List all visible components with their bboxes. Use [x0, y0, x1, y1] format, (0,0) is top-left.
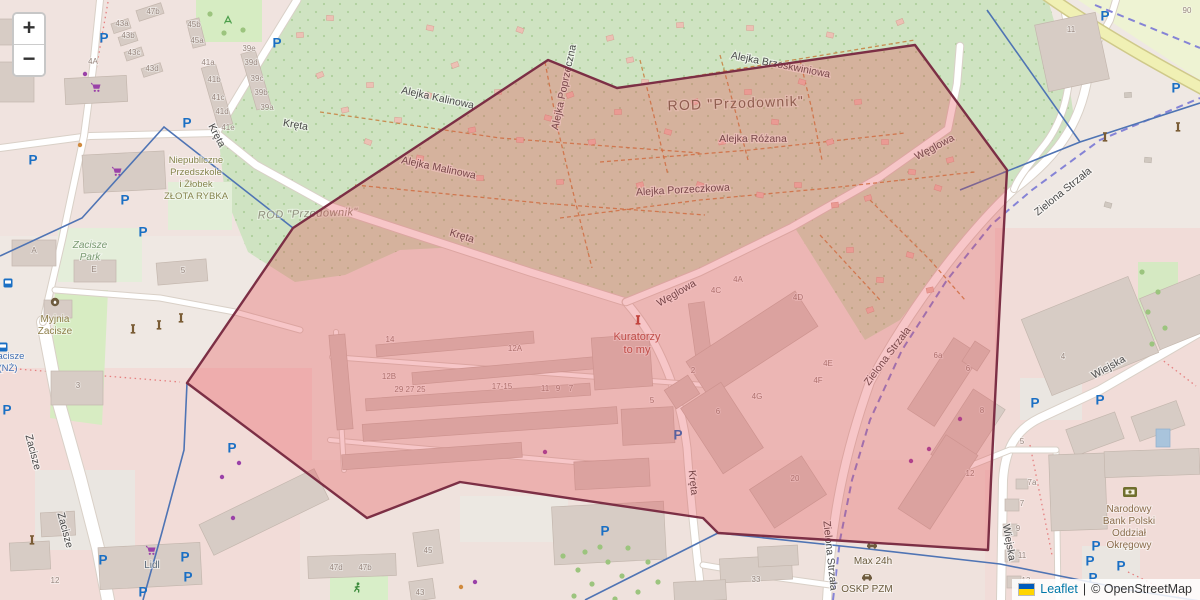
allotment-hut	[394, 117, 401, 123]
tree	[655, 579, 660, 584]
tree	[240, 27, 245, 32]
allotment-hut	[676, 22, 683, 28]
dot-purple-icon	[237, 461, 241, 465]
parking-icon	[227, 441, 236, 456]
parking-icon	[600, 524, 609, 539]
poi-label-line: Park	[80, 252, 102, 263]
poi-label-line: Oddział	[1112, 528, 1147, 539]
tree	[207, 11, 212, 16]
parking-icon	[1116, 559, 1125, 574]
house-number: 47b	[358, 563, 372, 572]
building	[1016, 479, 1028, 489]
parking-icon	[180, 550, 189, 565]
house-number: 43	[416, 588, 425, 597]
poi-label-lidl: Lidl	[144, 560, 160, 571]
building	[9, 541, 50, 571]
tree	[1145, 309, 1150, 314]
allotment-hut	[746, 25, 753, 30]
leaflet-link[interactable]: Leaflet	[1040, 582, 1078, 596]
bank-icon	[1123, 487, 1137, 497]
parking-icon	[1030, 396, 1039, 411]
poi-label-line: OSKP PZM	[841, 584, 893, 595]
building	[1156, 429, 1170, 447]
tree	[1162, 325, 1167, 330]
house-number: E	[91, 265, 96, 274]
dot-orange-icon	[459, 585, 463, 589]
house-number: 45a	[190, 36, 204, 45]
house-number: 39e	[242, 44, 256, 53]
house-number: 43a	[115, 19, 129, 28]
building	[1049, 453, 1108, 531]
allotment-hut	[1124, 92, 1131, 97]
tree	[575, 567, 580, 572]
house-number: 39c	[251, 74, 264, 83]
parking-icon	[138, 585, 147, 600]
house-number: 4A	[88, 57, 98, 66]
poi-label-line: Przedszkole	[170, 167, 222, 178]
house-number: 47b	[146, 7, 160, 16]
carwash-icon	[51, 298, 59, 306]
zoom-out-button[interactable]: −	[14, 45, 44, 75]
poi-label-line: Max 24h	[854, 556, 892, 567]
building	[758, 545, 799, 567]
dot-purple-icon	[473, 580, 477, 584]
building	[674, 580, 727, 600]
parking-icon	[1095, 393, 1104, 408]
house-number: 45	[424, 546, 433, 555]
tree	[560, 553, 565, 558]
parking-icon	[1085, 554, 1094, 569]
poi-label-line: i Żłobek	[179, 179, 213, 190]
bus-icon	[4, 279, 13, 288]
poi-label-line: Okręgowy	[1106, 540, 1151, 551]
house-number: 43b	[121, 31, 135, 40]
parking-icon	[182, 116, 191, 131]
house-number: 43d	[145, 64, 158, 73]
dot-purple-icon	[231, 516, 235, 520]
poi-label-myjnia-zacisze: MyjniaZacisze	[38, 314, 73, 337]
house-number: A	[31, 246, 37, 255]
house-number: 7	[1020, 499, 1025, 508]
house-number: 39d	[244, 58, 257, 67]
zoom-control: + −	[12, 12, 46, 77]
allotment-hut	[1144, 157, 1151, 163]
house-number: 11	[1067, 25, 1076, 34]
parking-icon	[272, 36, 281, 51]
parking-icon	[183, 570, 192, 585]
poi-label-line: Niepubliczne	[169, 155, 223, 166]
tree	[619, 573, 624, 578]
house-number: 39b	[254, 88, 268, 97]
tree	[635, 589, 640, 594]
house-number: 9	[1016, 524, 1021, 533]
tree	[1139, 269, 1144, 274]
tree	[625, 545, 630, 550]
parking-icon	[120, 193, 129, 208]
house-number: 41a	[201, 58, 215, 67]
tree	[1155, 289, 1160, 294]
house-number: 41e	[221, 123, 235, 132]
house-number: 41b	[207, 75, 221, 84]
leaflet-map[interactable]: P	[0, 0, 1200, 600]
dot-purple-icon	[83, 72, 87, 76]
poi-label-line: Zacisze	[72, 240, 108, 251]
poi-label-line: Bank Polski	[1103, 516, 1155, 527]
poi-label-oskp-pzm: OSKP PZM	[841, 584, 893, 595]
house-number: 3	[76, 381, 81, 390]
house-number: 41d	[215, 107, 228, 116]
allotment-hut	[426, 25, 434, 31]
house-number: 33	[752, 575, 761, 584]
tree	[605, 559, 610, 564]
map-canvas[interactable]: P	[0, 0, 1200, 600]
tree	[645, 559, 650, 564]
tree	[597, 544, 602, 549]
poi-label-line: Narodowy	[1106, 504, 1151, 515]
house-number: 41c	[212, 93, 225, 102]
tree	[582, 549, 587, 554]
house-number: 12	[51, 576, 60, 585]
house-number: 43c	[128, 48, 141, 57]
zoom-in-button[interactable]: +	[14, 14, 44, 45]
building	[308, 553, 397, 578]
attribution-separator: |	[1083, 582, 1086, 596]
parking-icon	[98, 553, 107, 568]
poi-label-line: Zacisze	[0, 351, 24, 362]
house-number: 39a	[260, 103, 274, 112]
house-number: 47d	[329, 563, 342, 572]
poi-label-line: Lidl	[144, 560, 160, 571]
house-number: 90	[1183, 6, 1192, 15]
ukraine-flag-icon	[1018, 583, 1035, 596]
allotment-hut	[296, 32, 303, 38]
tree	[1149, 341, 1154, 346]
parking-icon	[1091, 539, 1100, 554]
house-number: 45b	[187, 20, 201, 29]
dot-purple-icon	[220, 475, 224, 479]
allotment-hut	[366, 82, 373, 87]
parking-icon	[99, 31, 108, 46]
parking-icon	[1100, 9, 1109, 24]
bus-icon	[0, 343, 8, 352]
tree	[589, 581, 594, 586]
building	[1104, 448, 1200, 477]
tree	[221, 30, 226, 35]
poi-label-line: (NŻ)	[0, 363, 18, 374]
tree	[571, 593, 576, 598]
poi-label-line: ZŁOTA RYBKA	[164, 191, 229, 202]
house-number: 7a	[1028, 478, 1037, 487]
building	[1005, 499, 1019, 511]
poi-label-line: Zacisze	[38, 326, 73, 337]
house-number: 5	[181, 266, 186, 275]
attribution-bar: Leaflet | © OpenStreetMap	[1012, 579, 1200, 600]
osm-link[interactable]: © OpenStreetMap	[1091, 582, 1192, 596]
house-number: 4	[1061, 352, 1066, 361]
dot-orange-icon	[78, 143, 82, 147]
parking-icon	[28, 153, 37, 168]
poi-label-line: Myjnia	[41, 314, 70, 325]
parking-icon	[2, 403, 11, 418]
parking-icon	[1171, 81, 1180, 96]
poi-label-max-24h: Max 24h	[854, 556, 892, 567]
parking-icon	[138, 225, 147, 240]
house-number: 11	[1018, 551, 1027, 560]
building	[64, 75, 127, 104]
house-number: 5	[1020, 437, 1025, 446]
allotment-hut	[326, 15, 333, 20]
